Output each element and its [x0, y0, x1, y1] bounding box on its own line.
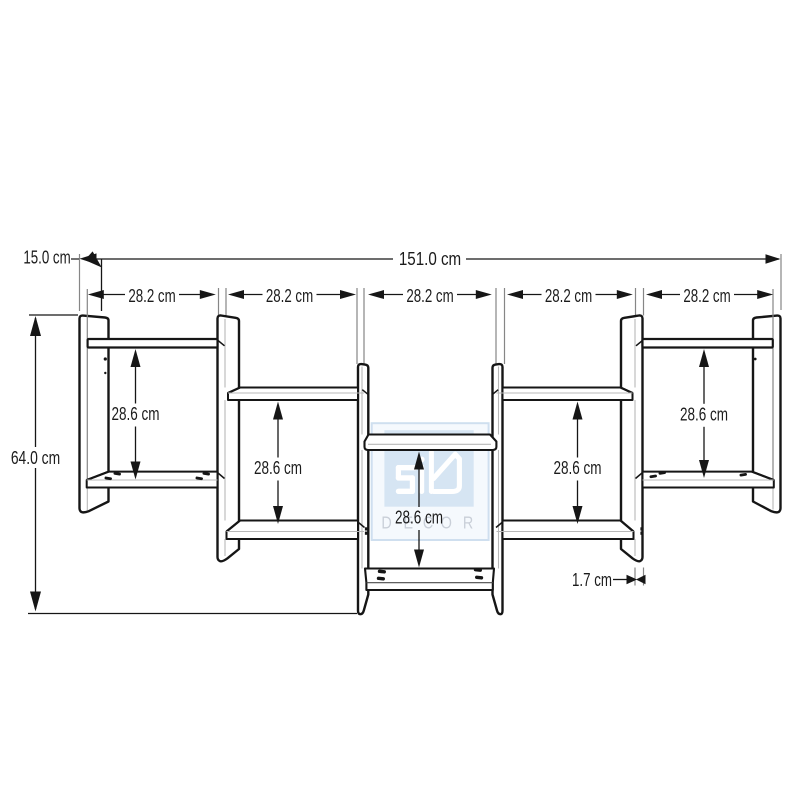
svg-text:64.0 cm: 64.0 cm [11, 448, 60, 468]
svg-text:28.2 cm: 28.2 cm [545, 286, 592, 307]
svg-text:28.6 cm: 28.6 cm [680, 404, 728, 425]
svg-text:28.2 cm: 28.2 cm [406, 286, 453, 307]
svg-text:28.6 cm: 28.6 cm [553, 458, 601, 479]
svg-text:R: R [463, 514, 473, 533]
svg-text:1.7 cm: 1.7 cm [572, 570, 612, 591]
svg-text:151.0 cm: 151.0 cm [399, 249, 461, 270]
svg-text:28.6 cm: 28.6 cm [254, 458, 302, 479]
svg-text:28.2 cm: 28.2 cm [266, 286, 313, 307]
svg-text:28.6 cm: 28.6 cm [395, 508, 443, 529]
svg-text:28.6 cm: 28.6 cm [111, 404, 159, 425]
svg-text:15.0 cm: 15.0 cm [23, 247, 70, 268]
svg-text:28.2 cm: 28.2 cm [683, 286, 730, 307]
svg-text:28.2 cm: 28.2 cm [128, 286, 175, 307]
svg-text:D: D [381, 514, 391, 533]
